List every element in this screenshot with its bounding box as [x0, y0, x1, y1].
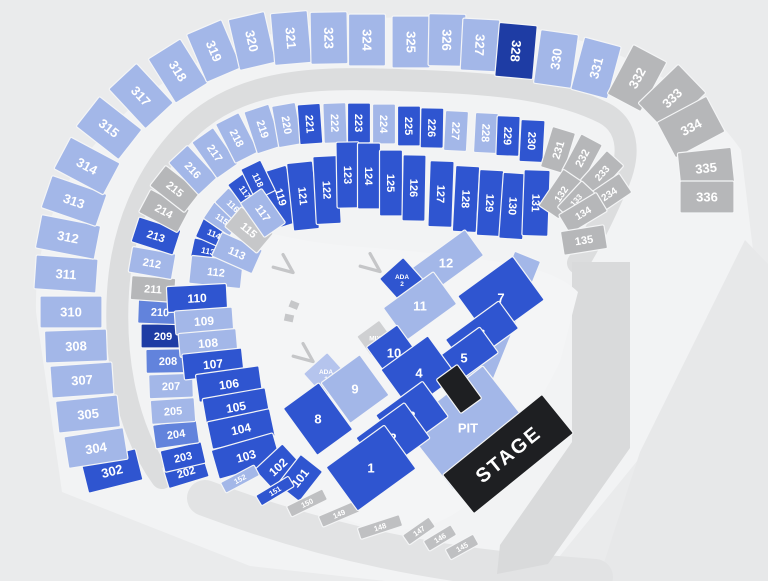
section-223-label: 223 [352, 114, 364, 132]
section-223[interactable]: 223 [348, 103, 371, 143]
section-328-label: 328 [507, 40, 524, 63]
section-4-label: 4 [415, 366, 423, 381]
section-224-label: 224 [377, 115, 389, 134]
section-211-label: 211 [144, 283, 163, 296]
section-pit-label: PIT [458, 421, 478, 436]
section-305-label: 305 [76, 406, 99, 423]
section-226[interactable]: 226 [420, 108, 444, 148]
section-327-label: 327 [472, 34, 488, 56]
section-321[interactable]: 321 [270, 10, 311, 65]
section-336-label: 336 [696, 190, 718, 205]
section-324[interactable]: 324 [349, 14, 386, 66]
section-106-label: 106 [218, 376, 240, 393]
section-229-label: 229 [501, 127, 514, 146]
section-330-label: 330 [547, 47, 565, 71]
section-221-label: 221 [302, 114, 315, 133]
section-225[interactable]: 225 [398, 106, 421, 146]
section-108-label: 108 [197, 335, 218, 351]
section-307-label: 307 [71, 372, 94, 388]
section-122-label: 122 [320, 181, 333, 200]
section-128[interactable]: 128 [452, 165, 479, 232]
section-210-label: 210 [151, 307, 170, 320]
section-222-label: 222 [328, 114, 341, 133]
section-311[interactable]: 311 [34, 255, 98, 293]
section-8-label: 8 [314, 412, 321, 427]
section-229[interactable]: 229 [496, 116, 520, 157]
section-5-label: 5 [460, 351, 467, 366]
section-326-label: 326 [439, 29, 454, 51]
section-335-label: 335 [694, 160, 717, 177]
section-129-label: 129 [483, 193, 496, 212]
section-112-label: 112 [206, 266, 225, 280]
section-221[interactable]: 221 [297, 103, 323, 145]
section-208-label: 208 [159, 356, 178, 368]
section-209-label: 209 [154, 331, 172, 343]
section-205-label: 205 [163, 405, 182, 418]
section-310-label: 310 [60, 305, 82, 320]
section-323-label: 323 [321, 27, 336, 49]
section-11-label: 11 [413, 299, 427, 314]
section-224[interactable]: 224 [373, 104, 396, 144]
section-226-label: 226 [425, 119, 437, 138]
section-124[interactable]: 124 [358, 143, 381, 209]
section-310[interactable]: 310 [40, 296, 102, 328]
section-225-label: 225 [402, 117, 414, 135]
section-227-label: 227 [449, 121, 462, 140]
section-131-label: 131 [529, 194, 542, 213]
section-1-label: 1 [367, 461, 374, 476]
section-323[interactable]: 323 [310, 12, 348, 65]
section-130-label: 130 [505, 196, 518, 215]
section-311-label: 311 [55, 266, 77, 282]
section-321-label: 321 [282, 27, 299, 50]
section-123[interactable]: 123 [336, 142, 360, 208]
section-205[interactable]: 205 [150, 397, 196, 424]
section-123-label: 123 [341, 166, 353, 185]
section-307[interactable]: 307 [50, 362, 114, 398]
section-230[interactable]: 230 [519, 119, 545, 162]
section-125-label: 125 [384, 174, 396, 192]
section-109-label: 109 [194, 314, 215, 329]
seat-map: 3023043053073083103113123133143153173183… [0, 0, 768, 581]
section-107-label: 107 [202, 356, 224, 372]
section-9-label: 9 [351, 382, 358, 397]
section-227[interactable]: 227 [443, 110, 468, 151]
section-126-label: 126 [407, 179, 419, 198]
section-328[interactable]: 328 [495, 22, 538, 79]
section-308[interactable]: 308 [44, 329, 107, 363]
section-127[interactable]: 127 [428, 161, 454, 228]
section-121-label: 121 [295, 186, 309, 206]
section-324-label: 324 [359, 29, 374, 51]
section-336[interactable]: 336 [680, 181, 734, 213]
section-228[interactable]: 228 [473, 112, 498, 153]
section-330[interactable]: 330 [533, 30, 578, 89]
section-12-label: 12 [439, 256, 453, 271]
section-127-label: 127 [434, 185, 447, 204]
section-327[interactable]: 327 [460, 18, 500, 72]
section-222[interactable]: 222 [323, 103, 347, 144]
section-128-label: 128 [459, 189, 472, 208]
section-325[interactable]: 325 [392, 16, 430, 68]
seat-map-page: 3023043053073083103113123133143153173183… [0, 0, 768, 581]
section-110-label: 110 [187, 291, 207, 306]
section-125[interactable]: 125 [380, 150, 403, 216]
section-325-label: 325 [403, 31, 418, 53]
section-305[interactable]: 305 [55, 395, 120, 433]
section-308-label: 308 [65, 338, 87, 354]
section-124-label: 124 [362, 167, 374, 186]
section-126[interactable]: 126 [402, 155, 426, 221]
section-207-label: 207 [162, 381, 181, 394]
section-228-label: 228 [479, 123, 492, 142]
section-230-label: 230 [525, 131, 538, 150]
